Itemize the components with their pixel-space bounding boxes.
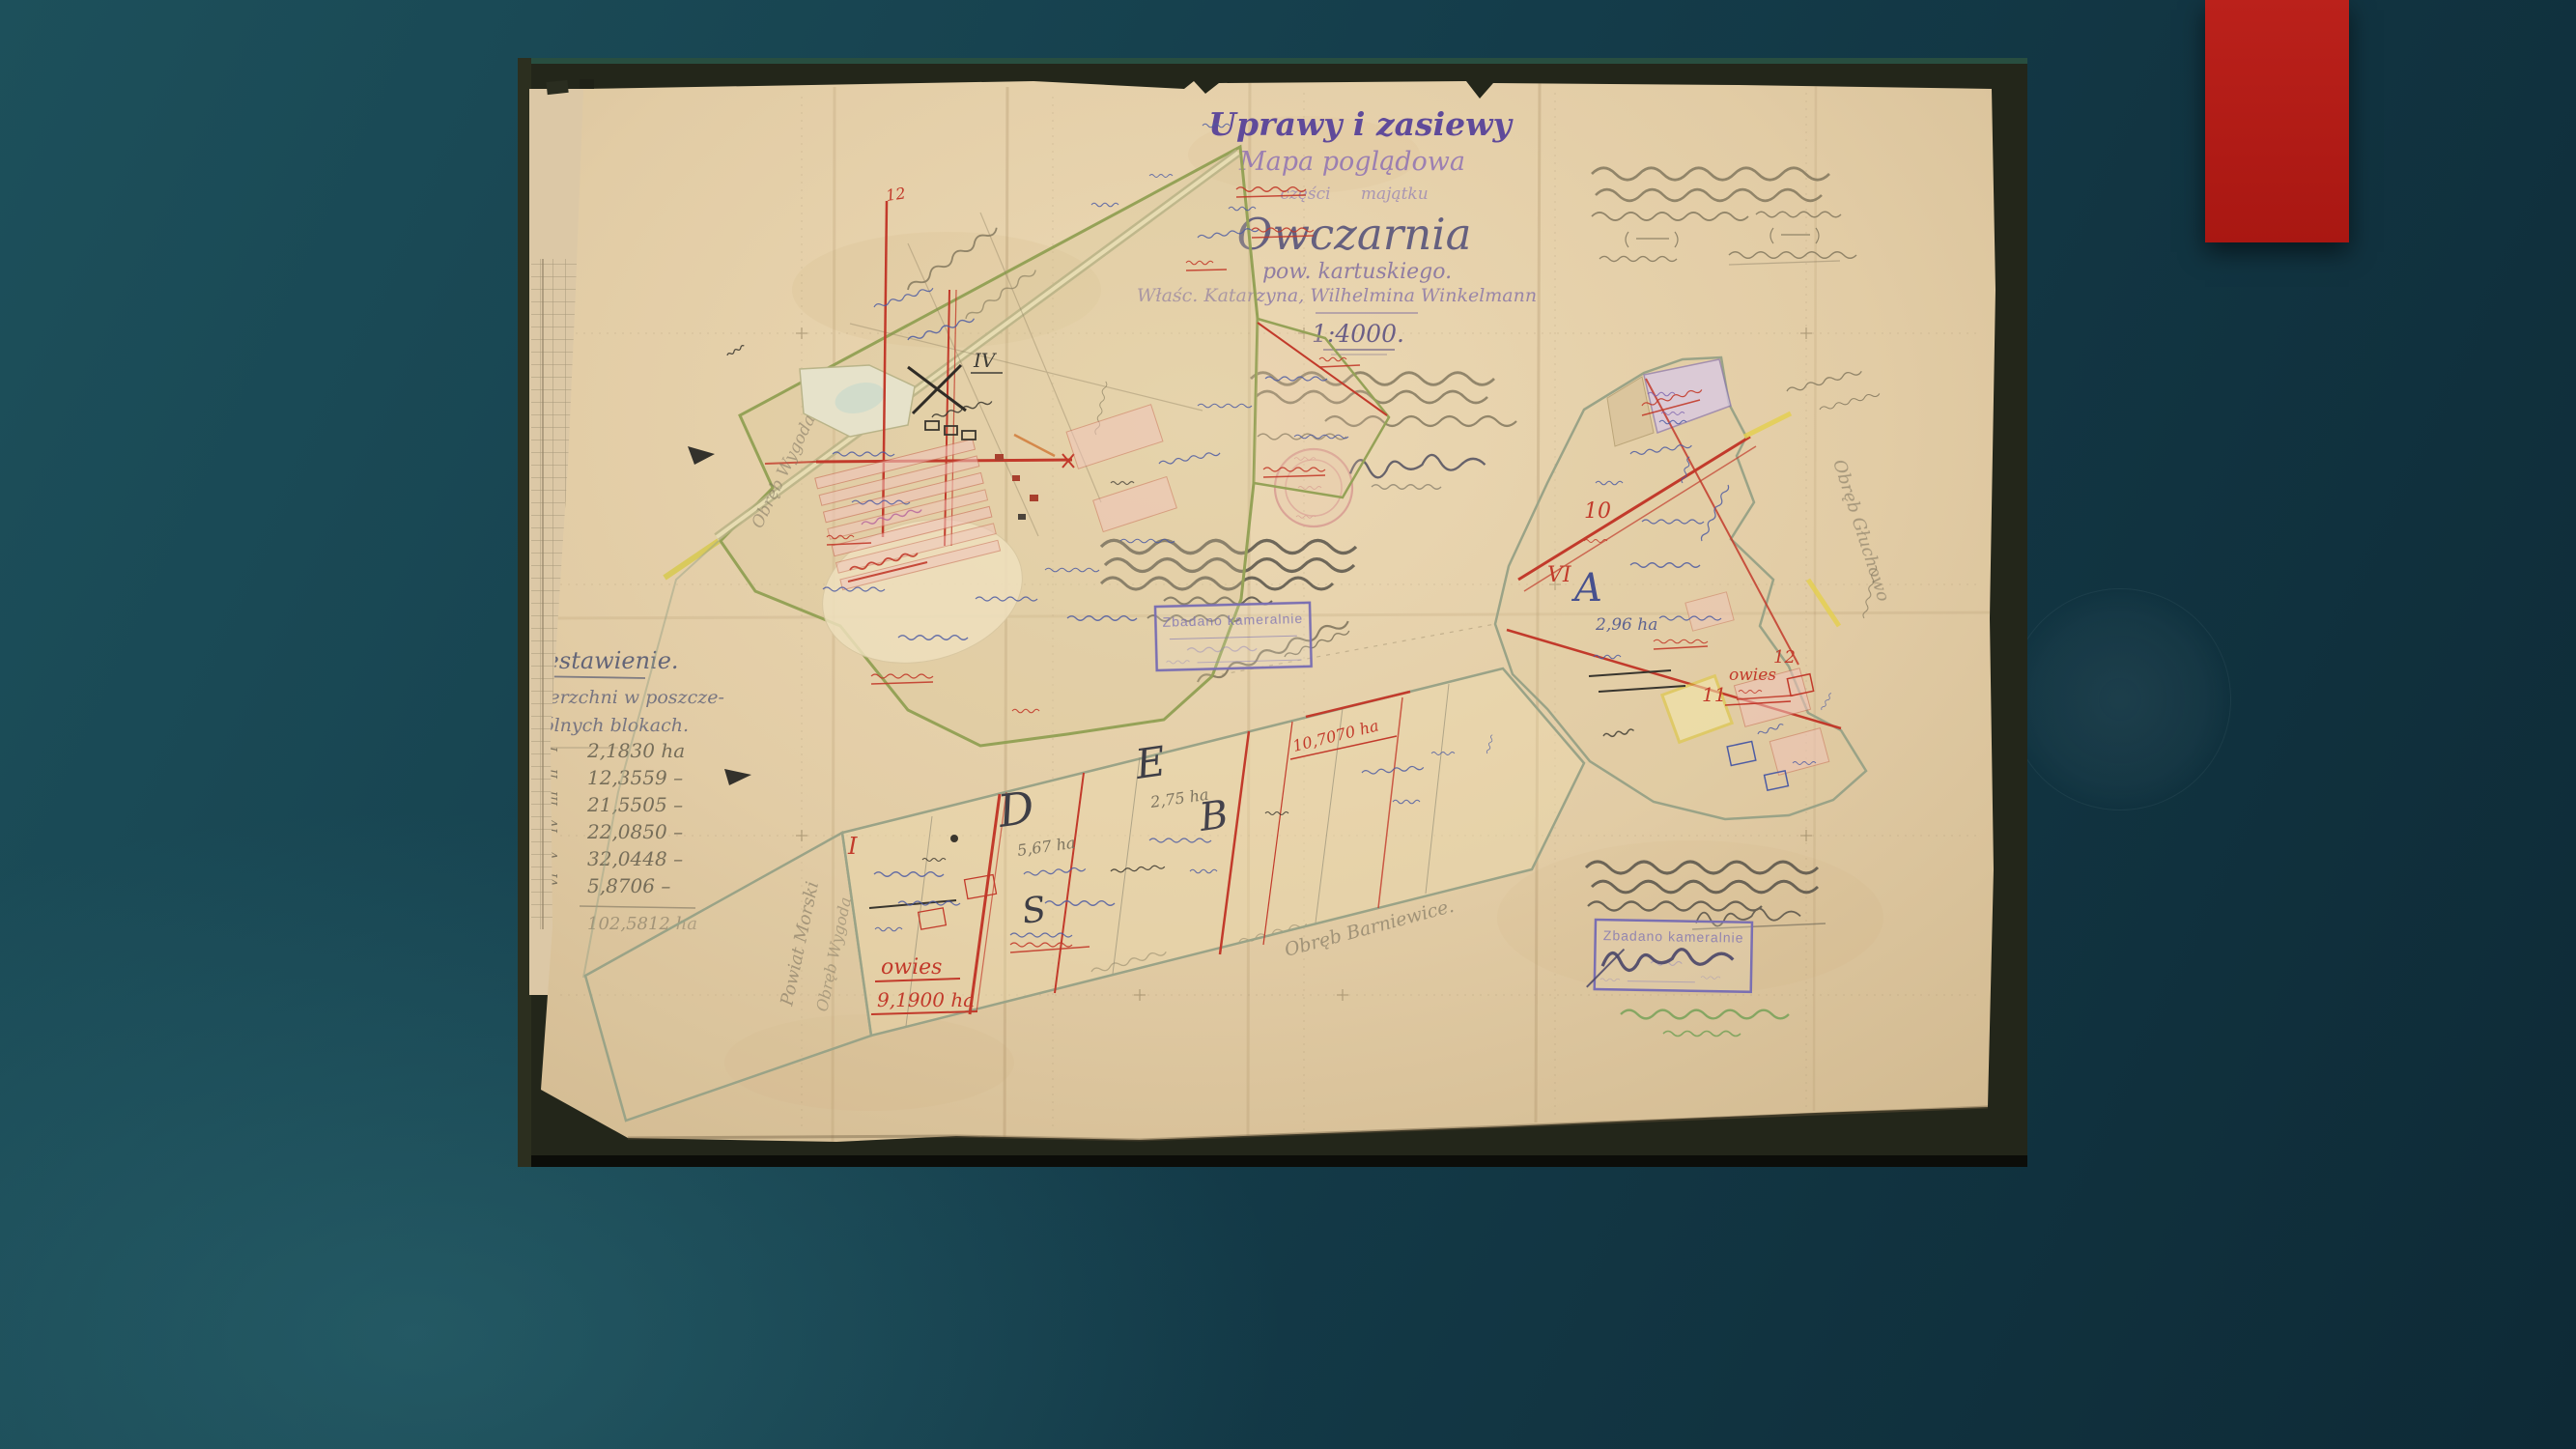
- summary-line2: wierzchni w poszcze-: [527, 687, 724, 708]
- parcel-letter-d: D: [994, 781, 1037, 838]
- map-suptitle: Uprawy i zasiewy: [1208, 105, 1514, 143]
- crop-owies-south-area: 9,1900 ha: [877, 988, 975, 1011]
- summary-row-value: 2,1830 ha: [586, 739, 685, 762]
- parcel-letter-a: A: [1571, 566, 1602, 611]
- stamp-title: Zbadano kameralnie: [1603, 927, 1744, 946]
- map-scan: Uprawy i zasiewy Mapa poglądowa części m…: [518, 58, 2027, 1167]
- summary-line3: gólnych blokach.: [531, 715, 689, 736]
- office-stamp-upper: Zbadano kameralnie: [1155, 603, 1312, 670]
- map-subtitle: Mapa poglądowa: [1238, 147, 1465, 177]
- parcel-letter-e: E: [1132, 737, 1169, 788]
- summary-row-value: 12,3559 –: [587, 766, 683, 789]
- parcel-a-area: 2,96 ha: [1595, 615, 1657, 635]
- office-stamp-lower: Zbadano kameralnie: [1587, 920, 1752, 992]
- summary-row-value: 32,0448 –: [587, 847, 683, 870]
- parcel-roman-iv: IV: [973, 349, 998, 372]
- accent-rectangle: [2205, 0, 2349, 242]
- estate-name: Owczarnia: [1237, 209, 1472, 260]
- parcel-roman-vi: VI: [1547, 563, 1572, 587]
- district-line: pow. kartuskiego.: [1262, 260, 1452, 284]
- crop-owies-east: owies: [1729, 666, 1776, 685]
- summary-row-value: 21,5505 –: [586, 793, 683, 816]
- parcel-roman-i: I: [847, 833, 858, 860]
- map-part-line: części majątku: [1280, 185, 1428, 204]
- parcel-number-10: 10: [1584, 499, 1611, 524]
- parcel-letter-b: B: [1196, 792, 1231, 840]
- decor-circle: [2009, 588, 2231, 810]
- parcel-number-11: 11: [1702, 683, 1726, 706]
- crop-owies-south: owies: [881, 955, 942, 980]
- parcel-number-12: 12: [1773, 647, 1796, 668]
- summary-row-value: 22,0850 –: [586, 820, 683, 843]
- nw-red-number: 12: [885, 184, 907, 205]
